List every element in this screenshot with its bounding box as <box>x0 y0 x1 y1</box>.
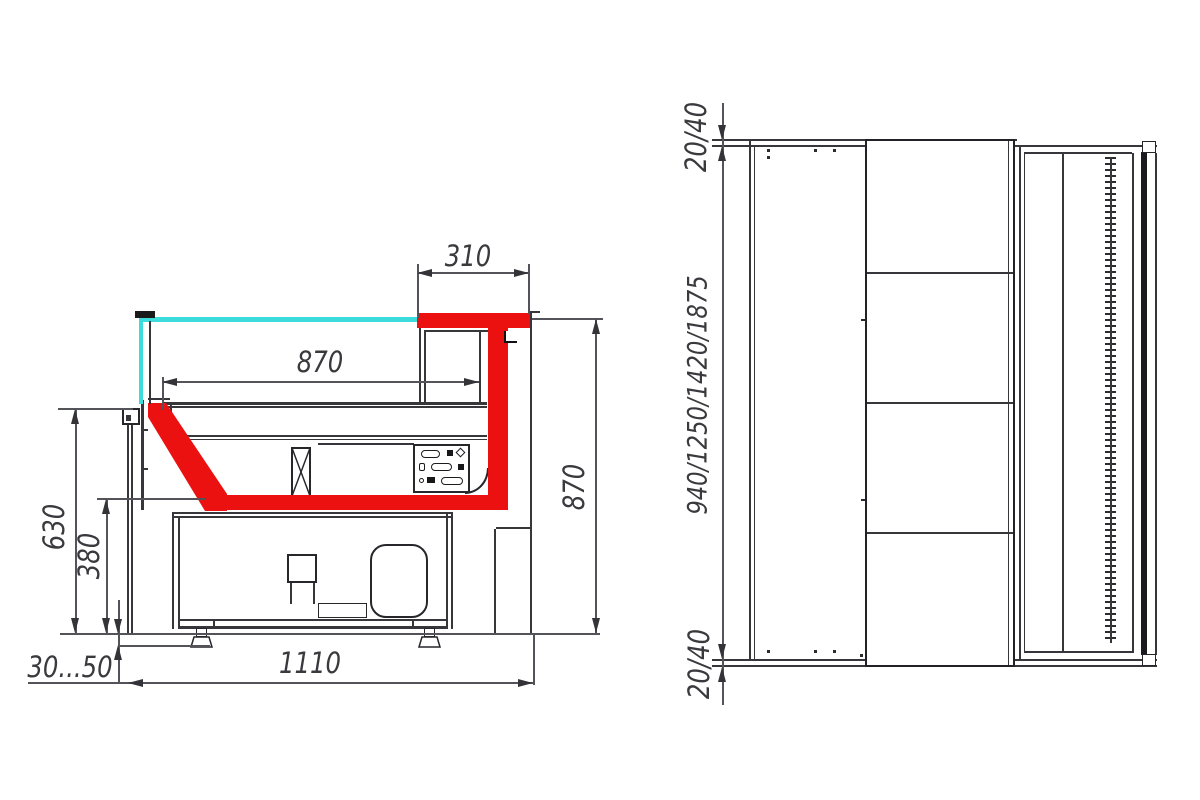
arrowhead <box>102 618 110 633</box>
canopy-inner-line <box>1024 651 1132 653</box>
arrowhead <box>592 618 600 633</box>
shelf-divider-line <box>867 532 1013 534</box>
arrowhead <box>718 644 726 659</box>
outer-right-edge <box>1155 153 1157 655</box>
corner-bracket <box>1142 654 1156 666</box>
arrowhead <box>417 269 432 277</box>
arrowhead <box>718 667 726 682</box>
dim-shelf-depth-label: 870 <box>297 345 344 379</box>
arrowhead <box>128 679 143 687</box>
drawing-canvas: 310 870 870 630 380 1110 <box>0 0 1200 800</box>
arrowhead <box>514 269 529 277</box>
floor-line <box>60 633 600 635</box>
screw-dot <box>833 650 836 653</box>
dim-length-options-label: 940/1250/1420/1875 <box>683 275 714 514</box>
ext-line <box>533 633 535 685</box>
dim-line <box>106 499 108 634</box>
screw-dot <box>767 156 770 159</box>
corner-bracket <box>1142 141 1156 153</box>
canopy-inner-line <box>1024 152 1132 154</box>
ext-line <box>118 600 120 684</box>
arrowhead <box>592 319 600 334</box>
screw-dot <box>814 149 817 152</box>
arrowhead <box>162 378 177 386</box>
dim-bottom-panel-thickness-label: 20/40 <box>682 629 716 699</box>
dim-line <box>162 381 479 383</box>
screw-dot <box>767 650 770 653</box>
canopy-edge <box>1019 145 1021 661</box>
dim-line <box>722 103 724 705</box>
dim-overall-depth-label: 1110 <box>279 646 341 680</box>
arrowhead <box>102 499 110 514</box>
arrowhead <box>114 645 122 660</box>
canopy-inner-line <box>1132 153 1134 653</box>
arrowhead <box>518 679 533 687</box>
arrowhead <box>718 146 726 161</box>
arrowhead <box>718 125 726 140</box>
arrowhead <box>464 378 479 386</box>
glass-edge-thick-line <box>1141 152 1147 655</box>
arrowhead <box>114 619 122 634</box>
shelf-inner-edge <box>1008 141 1009 665</box>
arrowhead <box>71 618 79 633</box>
shelf-divider-line <box>867 272 1013 274</box>
arrowhead <box>71 409 79 424</box>
dim-front-height-label: 630 <box>37 504 71 551</box>
dim-line <box>75 409 77 634</box>
floor-line <box>120 645 210 647</box>
screw-dot <box>767 149 770 152</box>
screw-dot <box>814 650 817 653</box>
canopy-inner-line <box>1062 153 1064 653</box>
canopy-edge <box>1024 152 1025 653</box>
dim-overall-height-label: 870 <box>557 464 591 511</box>
shelf-divider-line <box>867 402 1013 404</box>
dim-top-panel-thickness-label: 20/40 <box>679 102 713 172</box>
back-panel-edge <box>754 145 755 661</box>
dim-foot-adjust-label: 30...50 <box>27 650 112 684</box>
dim-well-floor-height-label: 380 <box>72 533 106 580</box>
dim-canopy-depth-label: 310 <box>445 239 492 273</box>
seal-center-line <box>1110 157 1112 643</box>
foot-base <box>419 637 440 647</box>
ext-line <box>58 408 133 410</box>
back-panel-edge <box>749 139 751 661</box>
screw-dot <box>860 654 863 657</box>
screw-dot <box>833 149 836 152</box>
ext-line <box>97 498 205 500</box>
dim-line <box>595 319 597 633</box>
